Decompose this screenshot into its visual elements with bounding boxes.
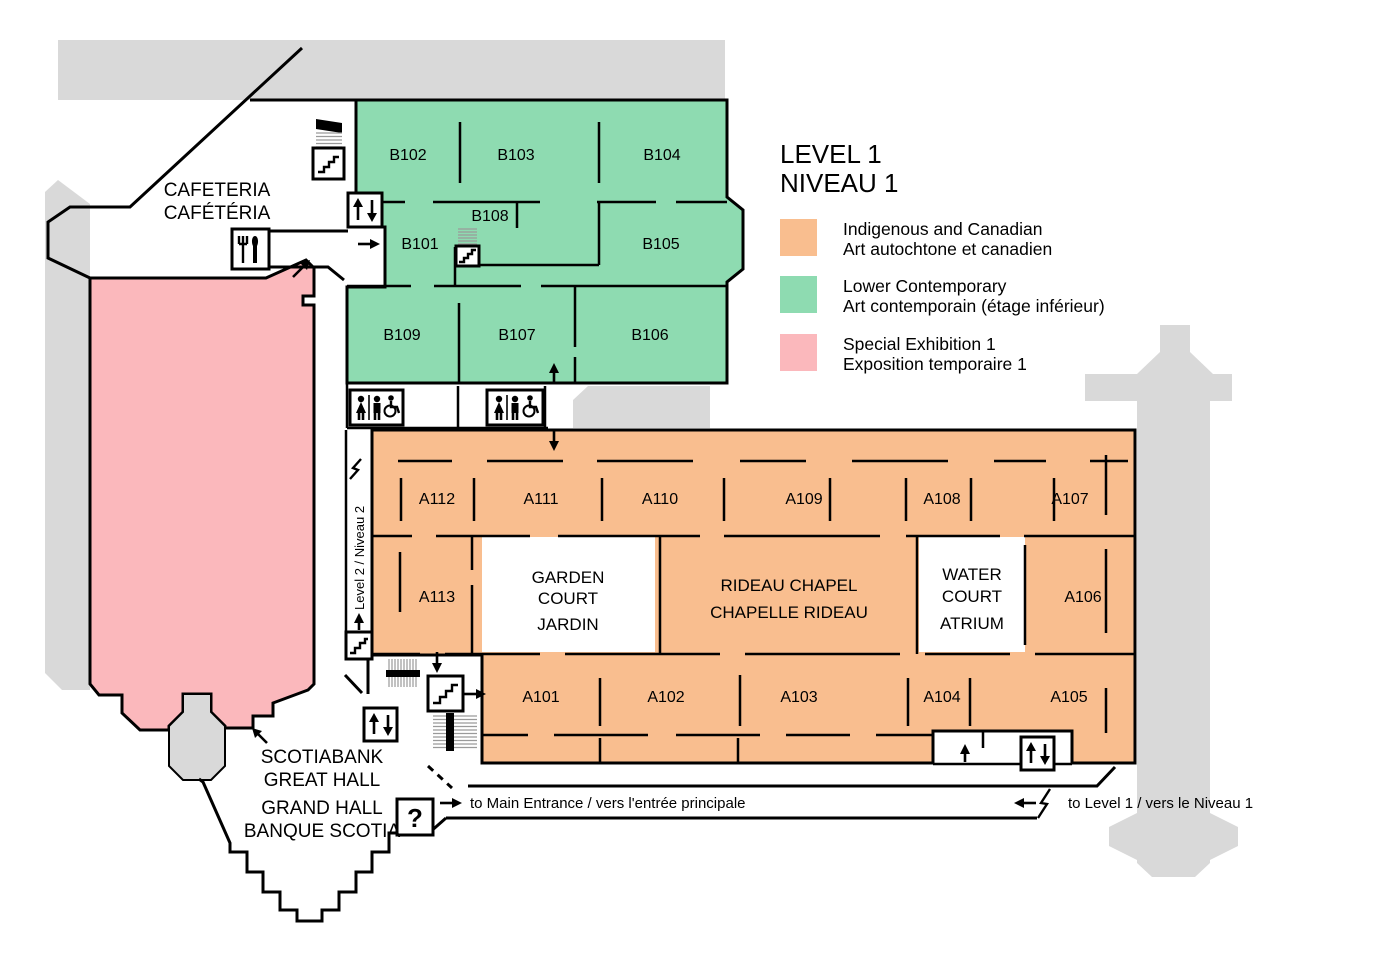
break-mark-level2 (350, 459, 361, 479)
garden-court-label-3: JARDIN (537, 615, 598, 634)
water-court-label-3: ATRIUM (940, 614, 1004, 633)
room-label-a106: A106 (1064, 589, 1101, 606)
exterior-wedge-below-b106 (573, 386, 710, 428)
room-label-b107: B107 (498, 327, 535, 344)
map-title: LEVEL 1 NIVEAU 1 (780, 139, 899, 198)
great-hall-label-2: GREAT HALL (264, 770, 381, 791)
water-court-label-2: COURT (942, 587, 1002, 606)
arrow-up-level2-corridor (354, 613, 364, 630)
legend: Indigenous and Canadian Art autochtone e… (780, 219, 1105, 374)
water-court-label-1: WATER (942, 565, 1002, 584)
room-label-a103: A103 (780, 689, 817, 706)
great-hall-label-3: GRAND HALL (261, 798, 382, 819)
room-label-a105: A105 (1050, 689, 1087, 706)
legend-label-contemporary-en: Lower Contemporary (843, 276, 1007, 296)
room-label-b108: B108 (471, 208, 508, 225)
room-label-b104: B104 (643, 147, 680, 164)
legend-swatch-contemporary (780, 276, 817, 313)
title-line-1: LEVEL 1 (780, 139, 882, 169)
title-line-2: NIVEAU 1 (780, 168, 899, 198)
legend-label-contemporary-fr: Art contemporain (étage inférieur) (843, 296, 1105, 316)
escalator-graphic-junction-horizontal (433, 713, 477, 751)
room-label-a112: A112 (419, 491, 455, 508)
cafeteria-label-fr: CAFÉTÉRIA (164, 203, 271, 224)
room-label-b102: B102 (389, 147, 426, 164)
restroom-icon-right (487, 390, 543, 425)
garden-court-label-2: COURT (538, 589, 598, 608)
room-label-b103: B103 (497, 147, 534, 164)
to-level1-label: to Level 1 / vers le Niveau 1 (1068, 795, 1253, 812)
room-label-a101: A101 (522, 689, 559, 706)
room-label-a109: A109 (785, 491, 822, 508)
cafeteria-label-en: CAFETERIA (164, 180, 271, 201)
floorplan-svg: ? B102 B103 B104 B101 B108 B105 B109 B10… (0, 0, 1390, 955)
room-label-a110: A110 (642, 491, 678, 508)
stairs-icon-upper (313, 148, 344, 179)
great-hall-opening-dashed (428, 766, 452, 788)
info-icon: ? (397, 799, 433, 835)
legend-swatch-special (780, 334, 817, 371)
elevator-icon-notch (1021, 737, 1054, 770)
room-label-a102: A102 (647, 689, 684, 706)
room-label-b109: B109 (383, 327, 420, 344)
exterior-wedge-left (45, 180, 90, 690)
great-hall-label-1: SCOTIABANK (261, 747, 384, 768)
elevator-icon-great-hall (364, 708, 397, 741)
roof-strip-top (58, 40, 725, 100)
stairs-icon-b108 (456, 246, 479, 266)
legend-swatch-indigenous (780, 219, 817, 256)
room-label-a107: A107 (1051, 491, 1088, 508)
break-mark-level1 (1038, 789, 1050, 818)
legend-label-indigenous-fr: Art autochtone et canadien (843, 239, 1052, 259)
level2-corridor-label: Level 2 / Niveau 2 (352, 506, 367, 610)
rideau-chapel-label-1: RIDEAU CHAPEL (721, 576, 858, 595)
restroom-icon-left (350, 390, 403, 425)
legend-label-indigenous-en: Indigenous and Canadian (843, 219, 1042, 239)
zone-special-exhibition (90, 260, 314, 730)
arrow-up-notch (960, 744, 970, 762)
legend-label-special-en: Special Exhibition 1 (843, 334, 996, 354)
info-icon-glyph: ? (407, 803, 423, 833)
great-hall-label-4: BANQUE SCOTIA (244, 821, 401, 842)
to-main-entrance-label: to Main Entrance / vers l'entrée princip… (470, 795, 746, 812)
legend-label-special-fr: Exposition temporaire 1 (843, 354, 1027, 374)
room-label-a111: A111 (524, 491, 559, 508)
rideau-chapel-label-2: CHAPELLE RIDEAU (710, 603, 868, 622)
room-label-b101: B101 (401, 236, 438, 253)
stairs-icon-level2-corridor (346, 632, 372, 659)
elevator-icon-green (348, 193, 382, 227)
arrow-into-b101 (358, 239, 380, 249)
room-label-a104: A104 (923, 689, 960, 706)
restaurant-icon (232, 229, 269, 269)
room-label-b105: B105 (642, 236, 679, 253)
stairs-icon-junction (428, 676, 463, 711)
room-label-a113: A113 (419, 589, 455, 606)
arrow-to-main-entrance (440, 798, 462, 808)
room-label-a108: A108 (923, 491, 960, 508)
arrow-to-level1 (1014, 798, 1036, 808)
floorplan-level-1: ? B102 B103 B104 B101 B108 B105 B109 B10… (0, 0, 1390, 955)
escalator-graphic-upper (316, 119, 342, 147)
garden-court-label-1: GARDEN (532, 568, 605, 587)
escalator-graphic-junction-vertical (386, 659, 420, 687)
arrow-diagonal-special-lower (252, 728, 267, 743)
room-label-b106: B106 (631, 327, 668, 344)
